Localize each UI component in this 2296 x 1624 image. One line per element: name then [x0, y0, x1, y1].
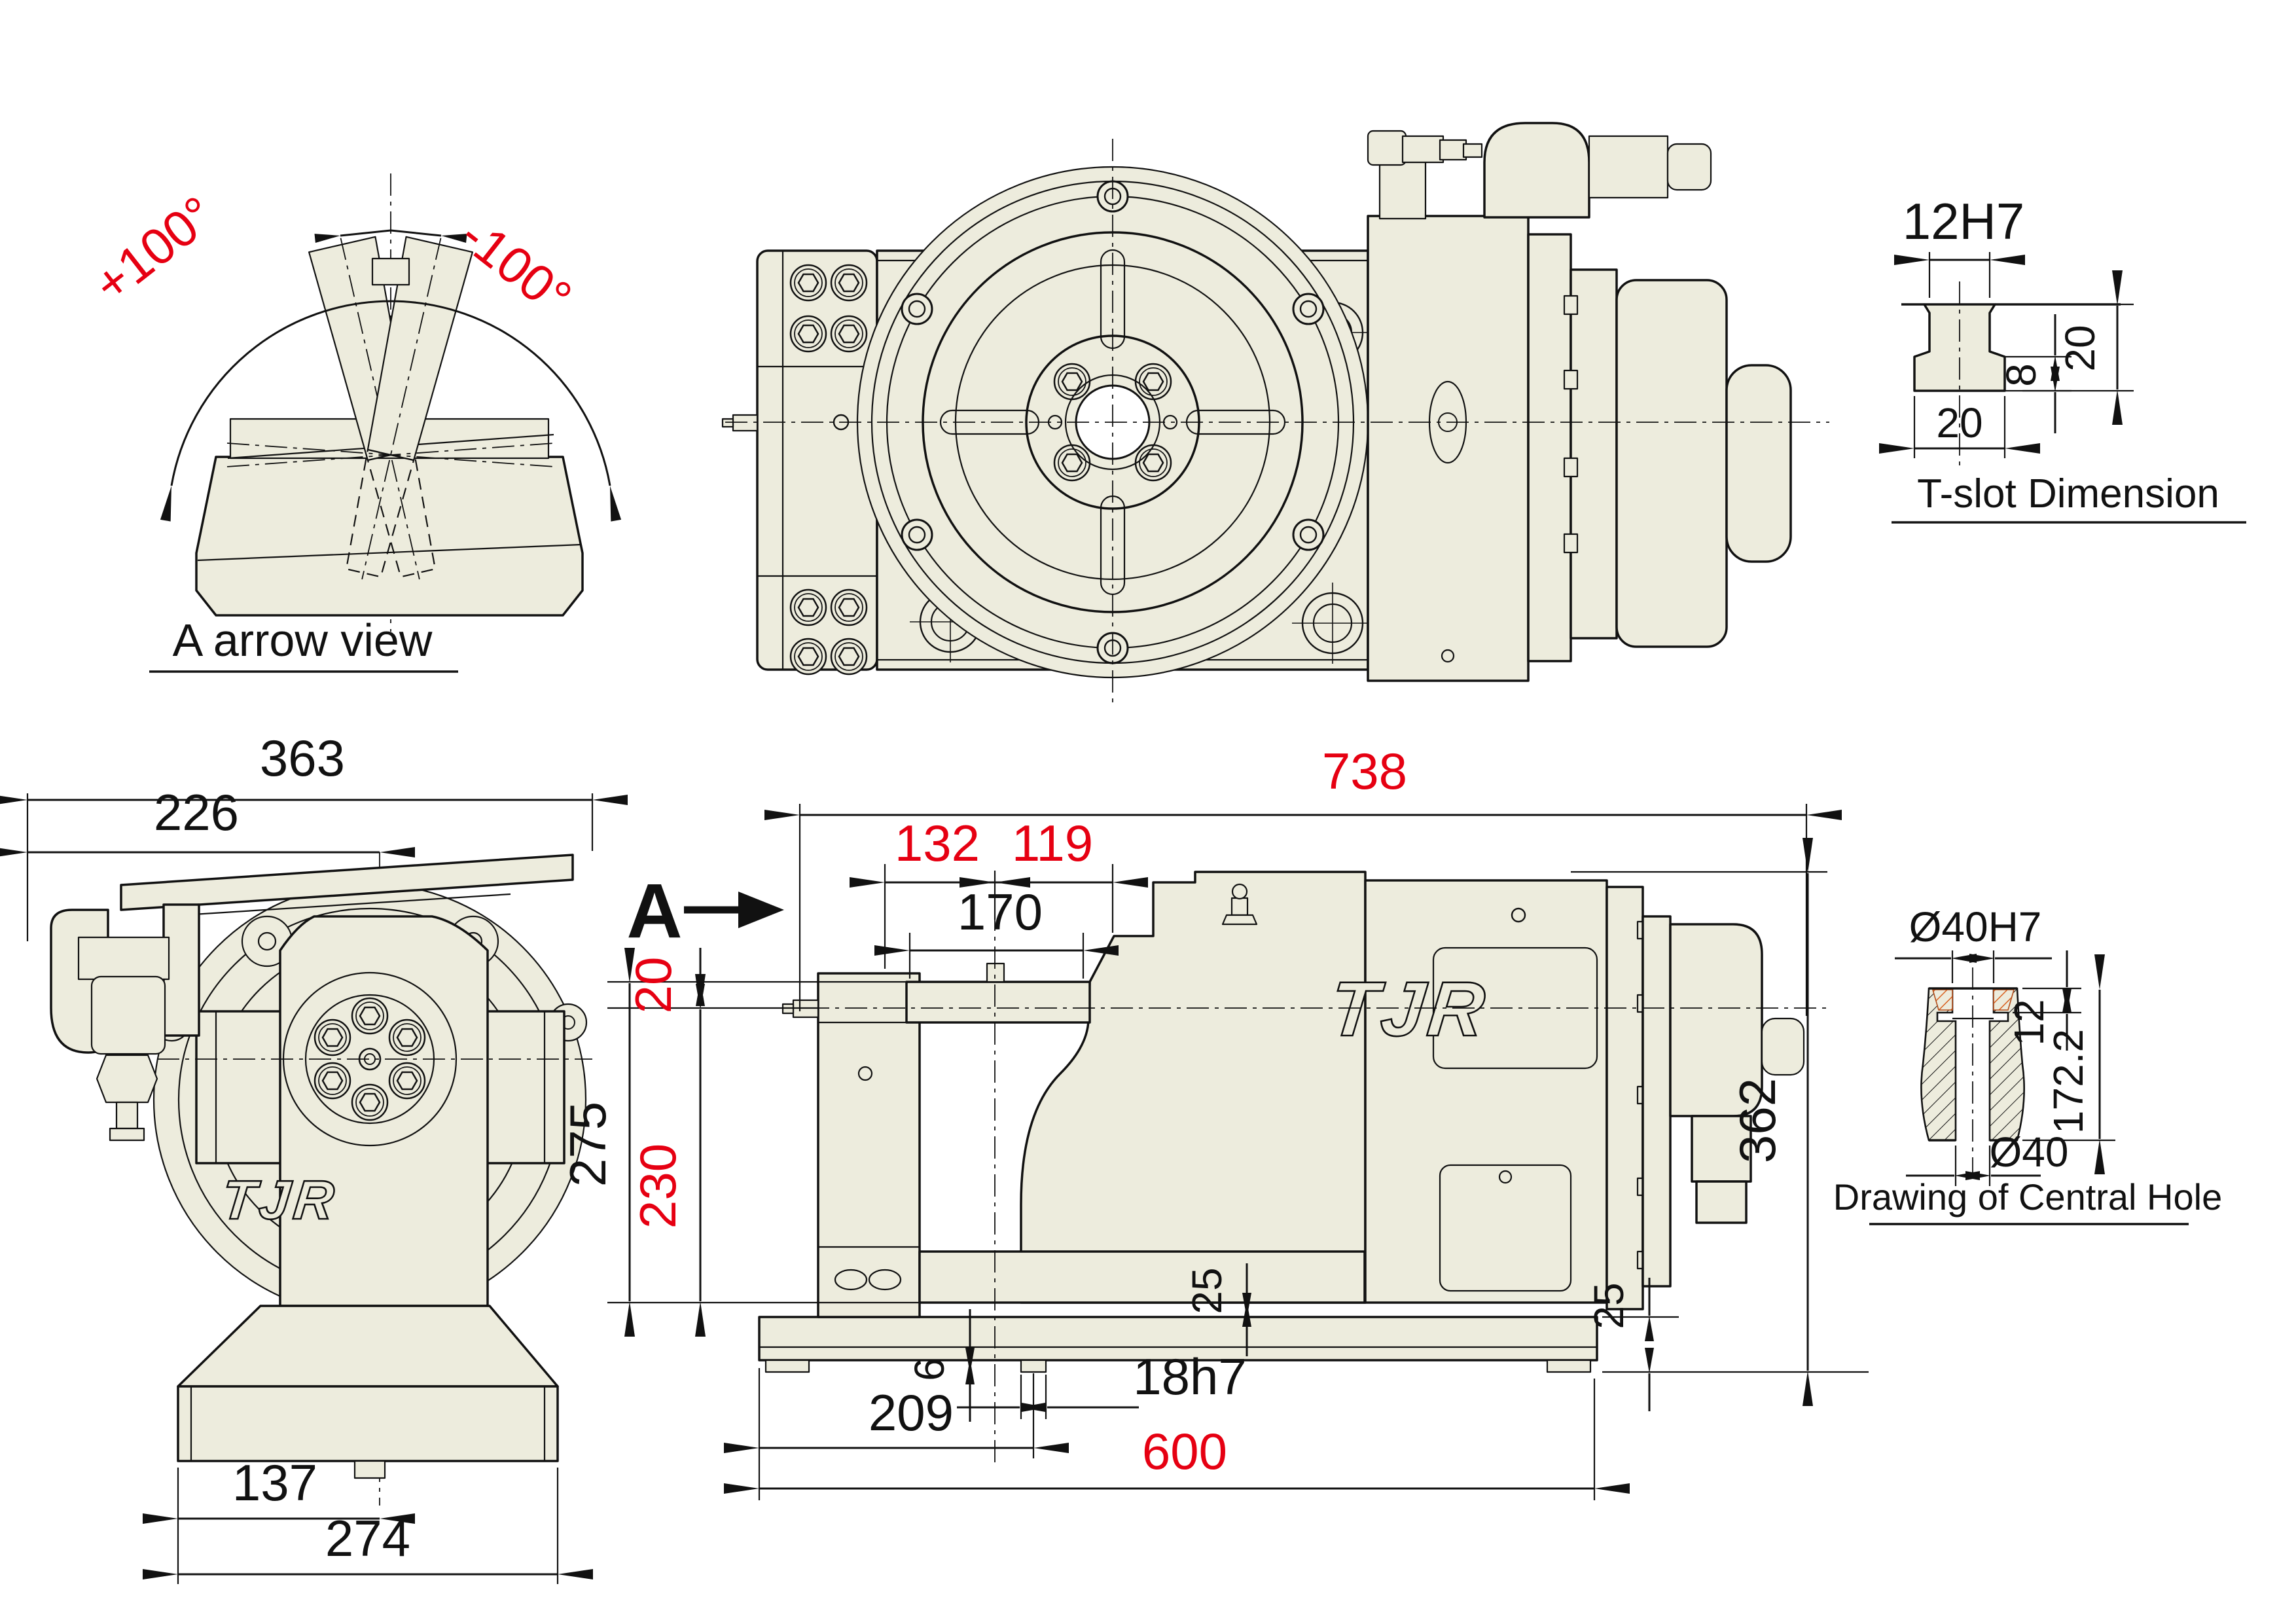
dim-side-362: 362	[1729, 1078, 1786, 1163]
technical-drawing: +100° -100° A arrow view	[0, 0, 2296, 1624]
motor-housing-top	[1617, 280, 1727, 647]
dim-front-left-to-center: 226	[154, 784, 239, 841]
dim-side-119: 119	[1012, 814, 1093, 872]
dim-hole-depth: 172.2	[2045, 1029, 2092, 1134]
dim-side-132: 132	[895, 814, 980, 872]
locating-key	[1021, 1360, 1046, 1372]
dim-side-25-right: 25	[1585, 1282, 1632, 1329]
dim-side-25-left: 25	[1183, 1267, 1230, 1314]
pallet-top-side	[906, 982, 1090, 1022]
dim-tslot-width: 12H7	[1903, 192, 2024, 250]
dim-side-6: 6	[906, 1358, 953, 1381]
pallet-block-side	[818, 973, 920, 1317]
detail-label-central-hole: Drawing of Central Hole	[1833, 1176, 2222, 1218]
pallet-stud	[987, 964, 1004, 982]
access-cover	[1440, 1165, 1571, 1291]
dim-front-base-width: 274	[325, 1509, 410, 1567]
oil-pan	[920, 1252, 1365, 1303]
base-plate-front	[178, 1386, 558, 1461]
encoder-cap	[1762, 1019, 1804, 1075]
dim-side-170: 170	[958, 883, 1043, 941]
dim-front-base-left-to-center: 137	[232, 1454, 317, 1511]
trunnion-wing-right	[484, 1011, 564, 1163]
dim-tslot-depth: 20	[2056, 325, 2104, 371]
cad-sheet: +100° -100° A arrow view	[0, 0, 2296, 1624]
motor-connector-2	[1696, 1182, 1746, 1223]
dim-side-230: 230	[629, 1144, 687, 1229]
brand-logo-front: TJR	[219, 1169, 341, 1231]
dim-tslot-base-height: 8	[1998, 363, 2045, 387]
view-marker-a: A	[626, 868, 682, 954]
pedestal-body	[196, 457, 583, 615]
dim-front-overall-width: 363	[260, 729, 345, 787]
dim-hole-bore-top: Ø40H7	[1909, 903, 2042, 950]
dim-side-275: 275	[559, 1102, 617, 1187]
adapter-ring-top	[1571, 270, 1617, 638]
view-label-a-arrow: A arrow view	[173, 615, 433, 666]
dim-side-base-length: 600	[1142, 1422, 1227, 1480]
dim-side-20: 20	[624, 957, 682, 1014]
adapter-ring-side	[1643, 916, 1670, 1286]
dim-side-209: 209	[869, 1384, 954, 1441]
dim-hole-bore-bottom: Ø40	[1990, 1128, 2069, 1176]
trunnion-wing-left	[196, 1011, 281, 1163]
gear-housing-top	[1368, 216, 1528, 681]
brand-logo-side: TJR	[1326, 966, 1493, 1053]
dim-side-key: 18h7	[1133, 1348, 1247, 1405]
base-key-front	[355, 1461, 385, 1478]
dim-tslot-base-width: 20	[1936, 399, 1982, 446]
motor-end-cap	[1727, 365, 1791, 562]
dim-side-overall-length: 738	[1322, 742, 1407, 800]
detail-label-tslot: T-slot Dimension	[1917, 471, 2219, 516]
